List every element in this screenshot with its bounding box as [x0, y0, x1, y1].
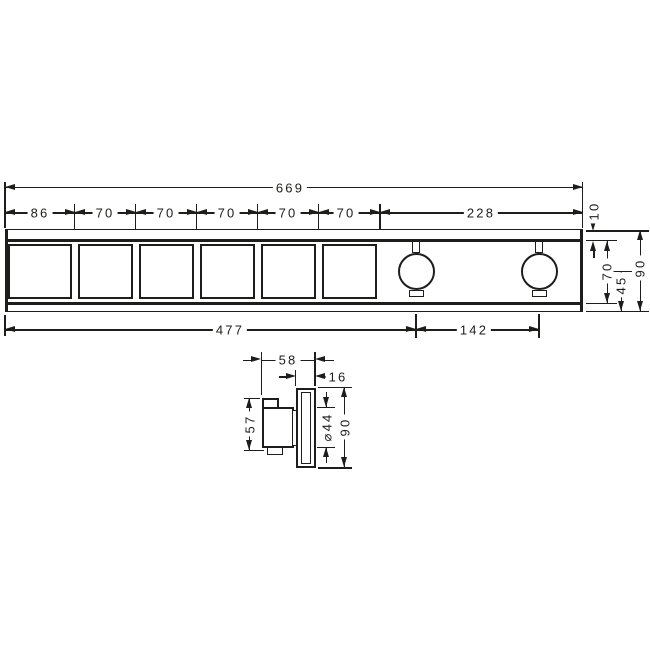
- arrowhead: [251, 356, 261, 362]
- arrowhead: [341, 387, 347, 397]
- arrowhead: [590, 241, 596, 251]
- dim-label-knob-spacing: 142: [457, 324, 491, 337]
- dim-label-plate-height: 90: [338, 415, 351, 440]
- technical-drawing: 669 86 70 70 70 70 70 228: [0, 0, 650, 650]
- arrowhead: [75, 209, 85, 215]
- arrowhead: [637, 301, 643, 311]
- arrowhead-left: [5, 184, 15, 190]
- knob-1-grip-tab: [409, 290, 425, 297]
- handle-body: [262, 407, 294, 448]
- dim-label-segment-3: 70: [154, 207, 179, 220]
- arrowhead: [323, 447, 329, 457]
- arrowhead: [416, 326, 426, 332]
- knob-1-stem: [412, 241, 420, 253]
- button-square-2: [78, 244, 133, 299]
- arrowhead: [637, 230, 643, 240]
- tick-line: [318, 204, 319, 229]
- arrowhead: [246, 440, 252, 450]
- arrowhead: [529, 326, 539, 332]
- arrowhead: [323, 397, 329, 407]
- plate-inner-top-line: [7, 239, 581, 242]
- dim-label-segment-5: 70: [276, 207, 301, 220]
- dim-label-segment-6: 70: [334, 207, 359, 220]
- arrowhead: [5, 209, 15, 215]
- arrowhead: [286, 373, 296, 379]
- arrowhead: [315, 356, 325, 362]
- dimension-tail: [325, 360, 334, 361]
- dim-label-total-width: 669: [273, 181, 307, 194]
- arrowhead: [248, 209, 258, 215]
- extension-line: [586, 311, 650, 312]
- arrowhead: [65, 209, 75, 215]
- arrowhead: [319, 209, 329, 215]
- tick-line: [74, 204, 75, 229]
- dim-label-field-height: 70: [601, 259, 614, 284]
- extension-line: [586, 303, 617, 304]
- arrowhead: [187, 209, 197, 215]
- tick-line: [257, 204, 258, 229]
- arrowhead: [197, 209, 207, 215]
- escutcheon-plate-inner: [301, 392, 311, 464]
- arrowhead: [406, 326, 416, 332]
- arrowhead: [604, 241, 610, 251]
- button-square-6: [322, 244, 378, 299]
- tick-line: [135, 204, 136, 229]
- knob-2-circle: [521, 253, 558, 290]
- extension-line: [318, 467, 352, 468]
- dim-label-segment-4: 70: [215, 207, 240, 220]
- knob-1-circle: [398, 253, 435, 290]
- dimension-line: [593, 251, 594, 258]
- arrowhead: [341, 457, 347, 467]
- arrowhead: [309, 209, 319, 215]
- dim-label-handle-diameter: ⌀44: [320, 410, 333, 445]
- arrowhead: [246, 398, 252, 408]
- arrowhead: [370, 209, 380, 215]
- tick-line: [379, 204, 380, 229]
- plate-inner-bottom-line: [7, 302, 581, 305]
- dim-label-total-depth: 58: [276, 354, 301, 367]
- button-square-5: [261, 244, 316, 299]
- dim-label-plate-depth: 16: [326, 371, 351, 384]
- arrowhead: [126, 209, 136, 215]
- extension-line: [244, 450, 264, 451]
- tick-line: [196, 204, 197, 229]
- arrowhead: [604, 293, 610, 303]
- button-square-1: [8, 244, 72, 299]
- arrowhead: [380, 209, 390, 215]
- arrowhead: [5, 326, 15, 332]
- arrowhead: [573, 209, 583, 215]
- arrowhead: [258, 209, 268, 215]
- dim-label-handle-height: 57: [243, 412, 256, 437]
- arrowhead-right: [573, 184, 583, 190]
- dim-label-left-to-knob: 477: [213, 324, 247, 337]
- button-square-3: [139, 244, 194, 299]
- dim-label-segment-1: 86: [28, 207, 53, 220]
- dim-label-total-height: 90: [634, 256, 647, 281]
- dim-label-center-to-bottom: 45: [615, 273, 628, 298]
- arrowhead: [618, 301, 624, 311]
- arrowhead: [136, 209, 146, 215]
- arrowhead: [315, 373, 325, 379]
- dim-label-segment-2: 70: [93, 207, 118, 220]
- dim-label-segment-7: 228: [464, 207, 498, 220]
- knob-2-stem: [535, 241, 543, 253]
- knob-2-grip-tab: [532, 290, 548, 297]
- dim-label-top-offset: 10: [588, 199, 601, 224]
- button-square-4: [200, 244, 255, 299]
- handle-grip-tab: [267, 447, 284, 455]
